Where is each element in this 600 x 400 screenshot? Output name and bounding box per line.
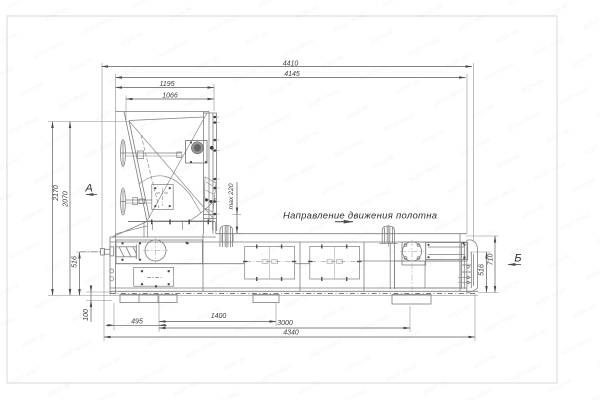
svg-text:2170: 2170: [53, 185, 60, 202]
svg-text:710: 710: [487, 254, 494, 266]
svg-text:1400: 1400: [211, 313, 227, 320]
svg-text:495: 495: [131, 319, 143, 326]
svg-text:Направление движения полотна: Направление движения полотна: [283, 211, 437, 222]
svg-text:max 220: max 220: [228, 183, 235, 209]
svg-text:1066: 1066: [162, 93, 178, 100]
svg-text:Б: Б: [514, 253, 521, 265]
svg-text:4145: 4145: [284, 71, 300, 78]
svg-text:1195: 1195: [159, 81, 174, 88]
svg-text:2070: 2070: [63, 191, 70, 208]
svg-text:100: 100: [83, 309, 90, 321]
svg-text:516: 516: [72, 256, 79, 268]
svg-text:4410: 4410: [283, 60, 299, 67]
svg-text:516: 516: [478, 264, 485, 276]
svg-text:4340: 4340: [283, 330, 299, 337]
svg-text:3000: 3000: [277, 320, 293, 327]
svg-text:А: А: [84, 183, 92, 195]
